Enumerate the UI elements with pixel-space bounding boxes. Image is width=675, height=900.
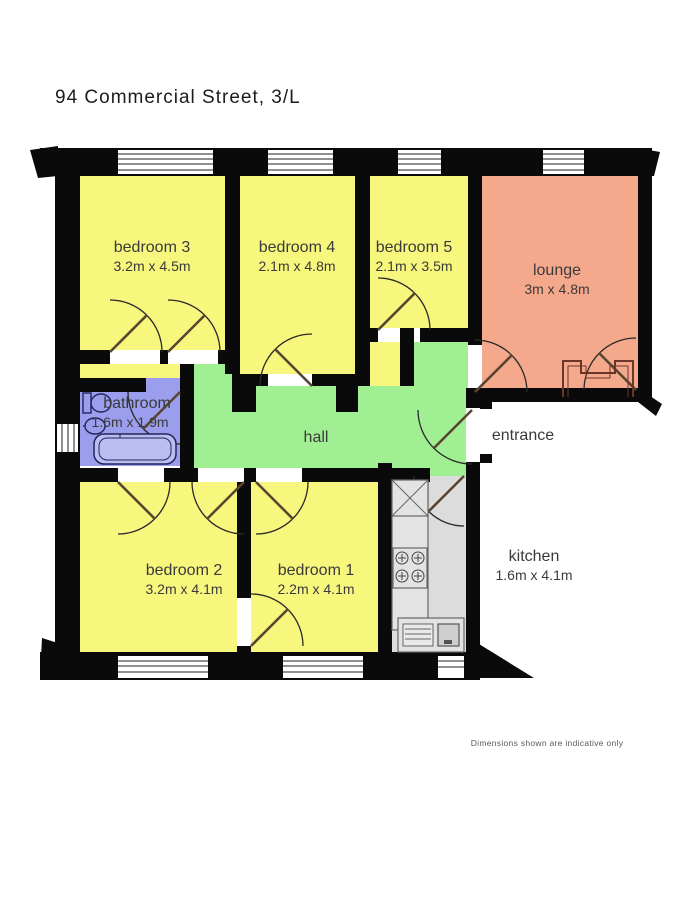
kitchen-sink (398, 618, 464, 652)
bedroom-5-alcove (370, 342, 400, 386)
floorplan-page: 94 Commercial Street, 3/L bedroom 3 3.2m… (0, 0, 675, 900)
bedroom-5-dims: 2.1m x 3.5m (375, 258, 452, 274)
bathtub (94, 434, 176, 464)
bedroom-2-label: bedroom 2 (146, 562, 223, 579)
bedroom-3-dims: 3.2m x 4.5m (113, 258, 190, 274)
room-bedroom-4 (240, 176, 355, 374)
bedroom-3-label: bedroom 3 (114, 239, 191, 256)
appliance-box (392, 480, 428, 516)
corridor-strip (80, 364, 180, 378)
lounge-dims: 3m x 4.8m (524, 281, 589, 297)
page-title: 94 Commercial Street, 3/L (55, 87, 301, 108)
bedroom-1-dims: 2.2m x 4.1m (277, 581, 354, 597)
window-bedroom-1 (283, 656, 363, 678)
window-bathroom-side (57, 424, 78, 452)
disclaimer: Dimensions shown are indicative only (471, 738, 624, 748)
window-bedroom-5 (398, 150, 441, 174)
floorplan-drawing: 94 Commercial Street, 3/L bedroom 3 3.2m… (0, 0, 675, 900)
window-bedroom-4 (268, 150, 333, 174)
lounge-label: lounge (533, 262, 581, 279)
bedroom-4-dims: 2.1m x 4.8m (258, 258, 335, 274)
entrance-label: entrance (492, 427, 554, 444)
bedroom-5-label: bedroom 5 (376, 239, 453, 256)
window-kitchen (438, 656, 464, 678)
bathroom-label: bathroom (103, 395, 171, 412)
hob (393, 548, 427, 588)
window-bedroom-2 (118, 656, 208, 678)
bedroom-4-label: bedroom 4 (259, 239, 336, 256)
hall-upper-extension (414, 342, 468, 388)
kitchen-label: kitchen (509, 548, 560, 565)
window-lounge (543, 150, 584, 174)
bedroom-1-label: bedroom 1 (278, 562, 355, 579)
kitchen-dims: 1.6m x 4.1m (495, 567, 572, 583)
bathroom-dims: 1.6m x 1.9m (91, 414, 168, 430)
bedroom-2-dims: 3.2m x 4.1m (145, 581, 222, 597)
window-bedroom-3 (118, 150, 213, 174)
hall-label: hall (304, 429, 329, 446)
